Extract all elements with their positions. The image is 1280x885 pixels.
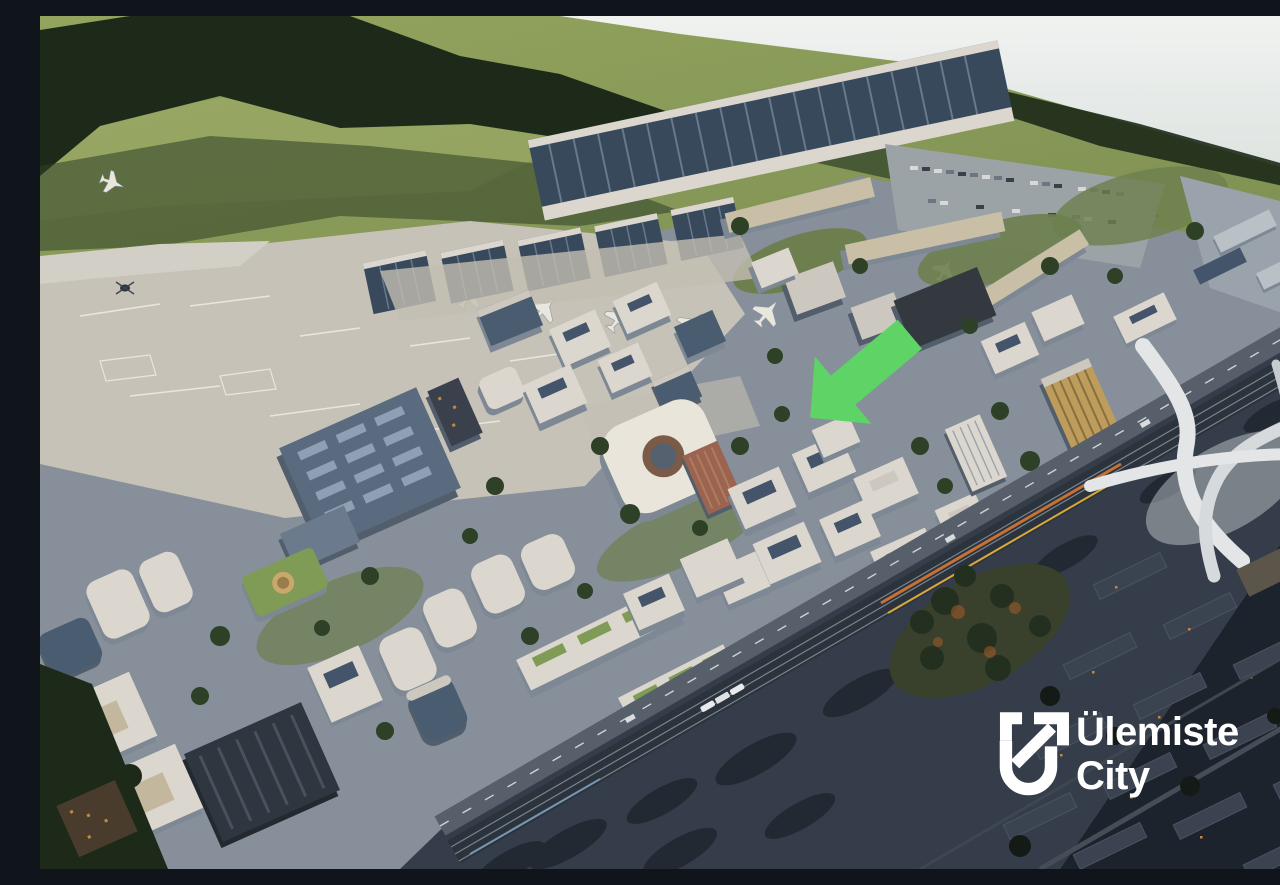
aerial-render: Ülemiste City — [40, 16, 1280, 869]
scene-canvas: Ülemiste City — [40, 16, 1280, 869]
logo-wordmark-line1: Ülemiste — [1076, 709, 1239, 754]
logo-wordmark-line2: City — [1076, 754, 1151, 798]
